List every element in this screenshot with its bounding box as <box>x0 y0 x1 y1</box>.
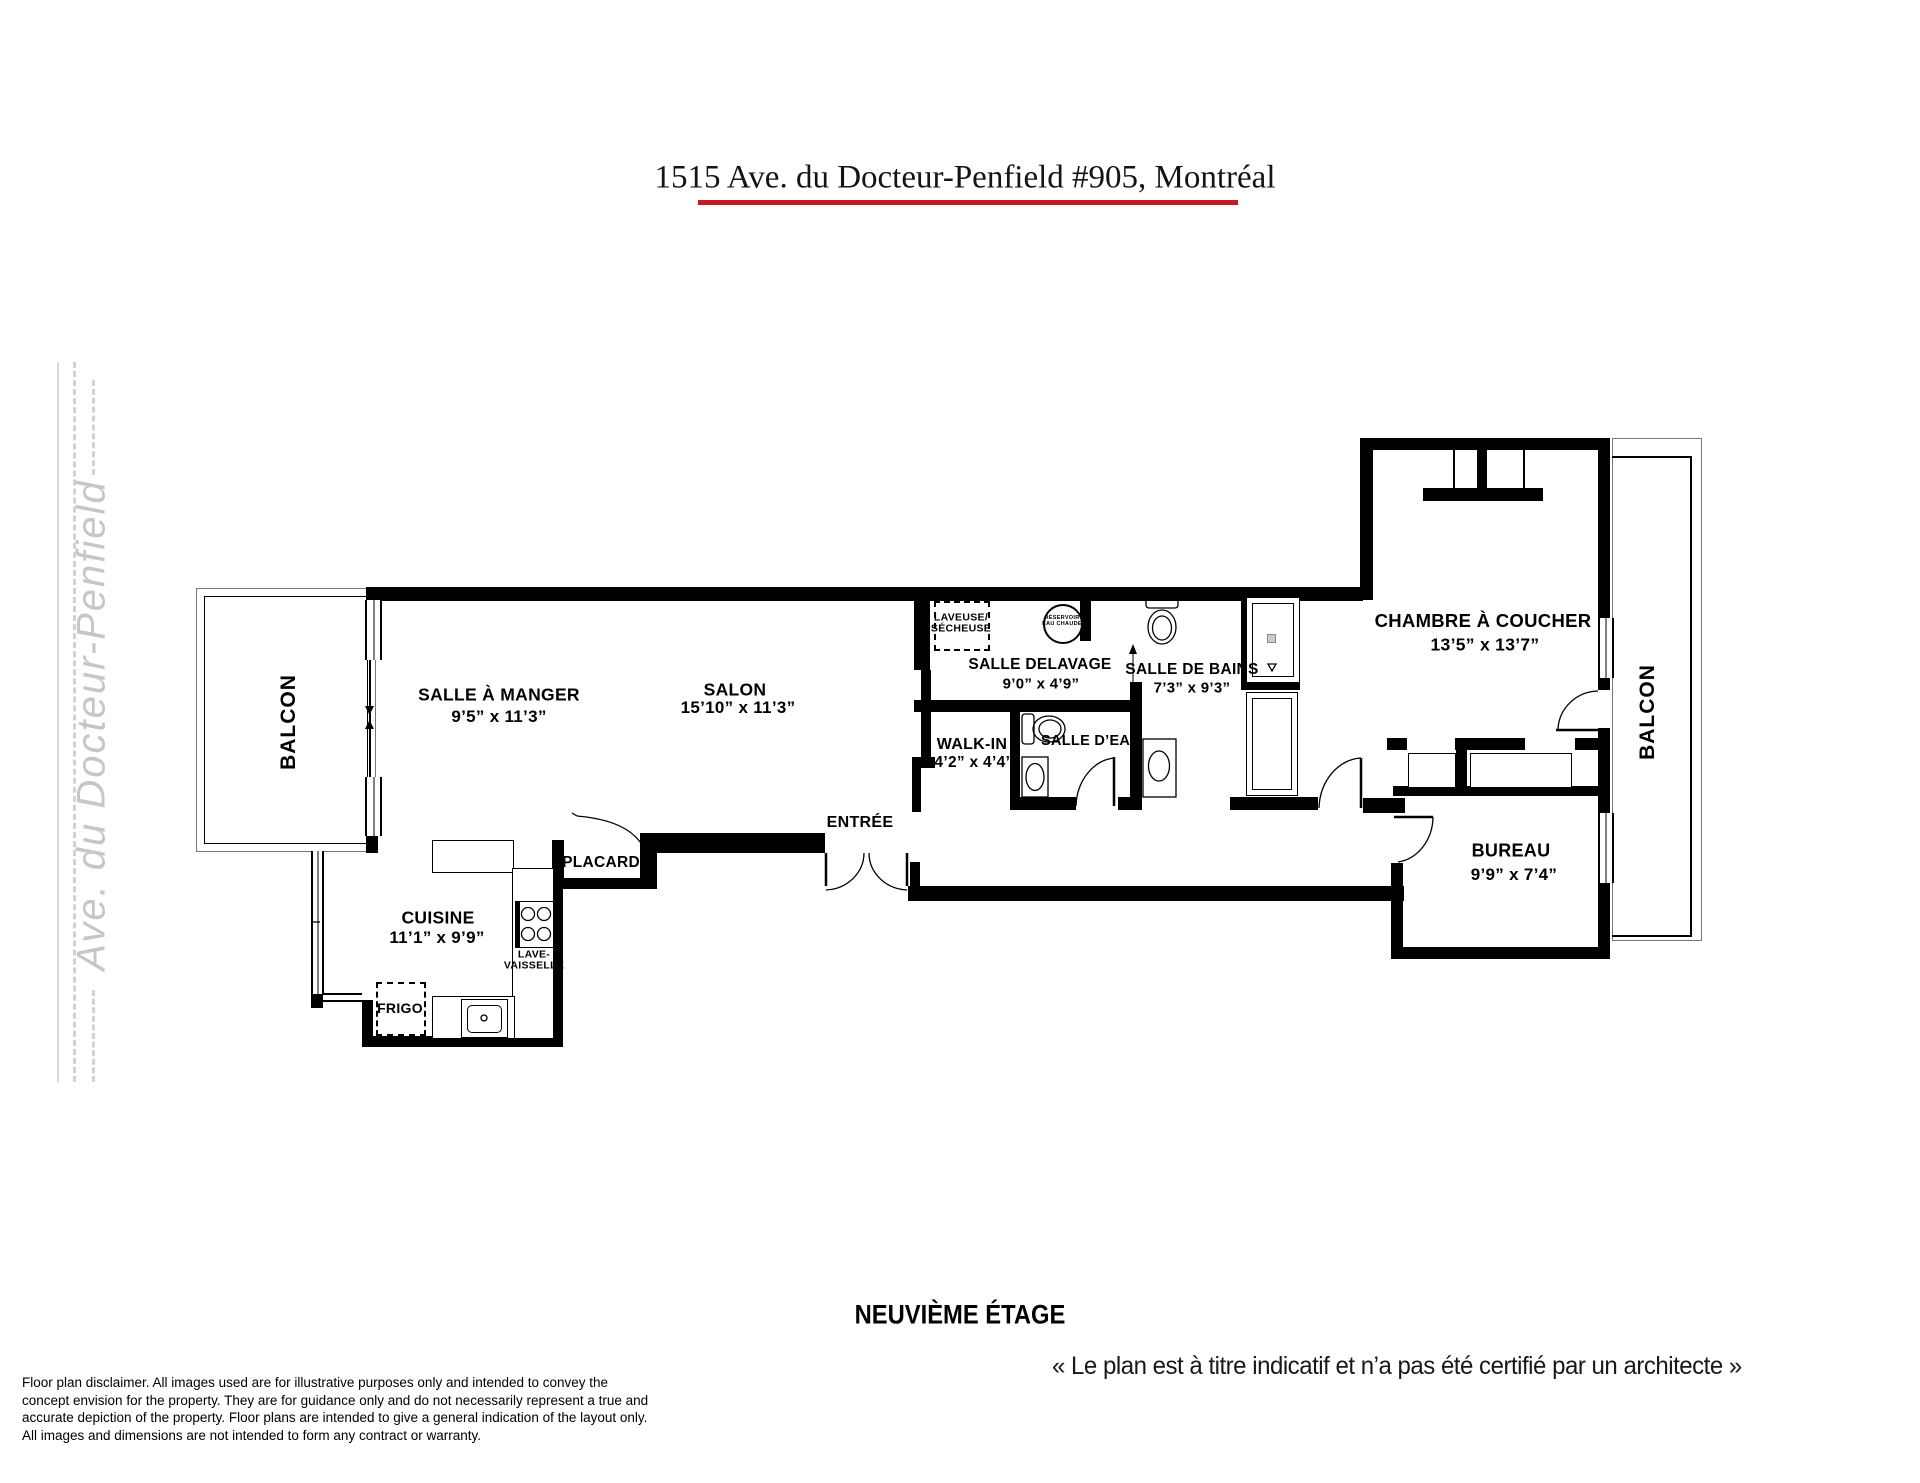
disclaimer-line: accurate depiction of the property. Floo… <box>22 1409 648 1427</box>
disclaimer-line: All images and dimensions are not intend… <box>22 1427 648 1445</box>
stove-burner <box>522 908 535 921</box>
room-label-entree: ENTRÉE <box>827 814 894 832</box>
disclaimer-line: concept envision for the property. They … <box>22 1392 648 1410</box>
entry-arrow-head <box>1129 644 1137 654</box>
room-label-placard: PLACARD <box>562 854 640 872</box>
room-dims-walk-in: 4’2” x 4’4” <box>934 754 1013 772</box>
architect-quote: « Le plan est à titre indicatif et n’a p… <box>1052 1352 1878 1381</box>
room-label-salle-de-bains: SALLE DE BAINS <box>1125 661 1258 679</box>
room-label-chambre: CHAMBRE À COUCHER <box>1375 610 1592 632</box>
sliding-door-arrow <box>365 720 374 729</box>
shower-drain <box>1268 664 1276 671</box>
room-label-walk-in: WALK-IN <box>937 736 1008 754</box>
toilet <box>1022 714 1034 744</box>
room-dims-salle-de-bains: 7’3” x 9’3” <box>1154 680 1231 697</box>
door-arc <box>826 853 864 890</box>
room-label-salle-d-eau: SALLE D’EAU <box>1041 733 1141 749</box>
disclaimer-line: Floor plan disclaimer. All images used a… <box>22 1374 648 1392</box>
room-dims-salon: 15’10” x 11’3” <box>681 698 796 718</box>
vanity-sink <box>1149 751 1170 781</box>
toilet <box>1146 595 1178 608</box>
door-leaf <box>572 813 577 816</box>
room-label-salle-delavage: SALLE DELAVAGE <box>968 656 1111 674</box>
stove-burner <box>538 908 551 921</box>
disclaimer-text: Floor plan disclaimer. All images used a… <box>22 1374 648 1444</box>
floor-title: NEUVIÈME ÉTAGE <box>855 1300 1066 1331</box>
room-dims-salle-a-manger: 9’5” x 11’3” <box>451 707 546 727</box>
door-arc <box>1319 758 1361 808</box>
door-arc <box>1076 758 1114 806</box>
stove-burner <box>522 928 535 941</box>
room-label-bureau: BUREAU <box>1472 841 1551 862</box>
room-label-salle-a-manger: SALLE À MANGER <box>418 685 580 706</box>
room-dims-bureau: 9’9” x 7’4” <box>1471 865 1557 885</box>
sink-drain <box>481 1015 487 1021</box>
door-arc <box>869 853 907 890</box>
room-dims-cuisine: 11’1” x 9’9” <box>389 928 484 948</box>
door-arc <box>577 816 640 842</box>
room-dims-salle-delavage: 9’0” x 4’9” <box>1003 676 1080 693</box>
door-arc <box>1558 691 1598 729</box>
door-arc <box>1398 817 1433 862</box>
room-label-cuisine: CUISINE <box>401 908 474 929</box>
floor-plan-page: 1515 Ave. du Docteur-Penfield #905, Mont… <box>0 0 1920 1483</box>
vanity-sink <box>1026 764 1044 791</box>
toilet-bowl-inner <box>1153 616 1172 640</box>
sliding-door-arrow <box>365 706 374 715</box>
room-dims-chambre: 13’5” x 13’7” <box>1431 635 1540 656</box>
stove-burner <box>538 928 551 941</box>
